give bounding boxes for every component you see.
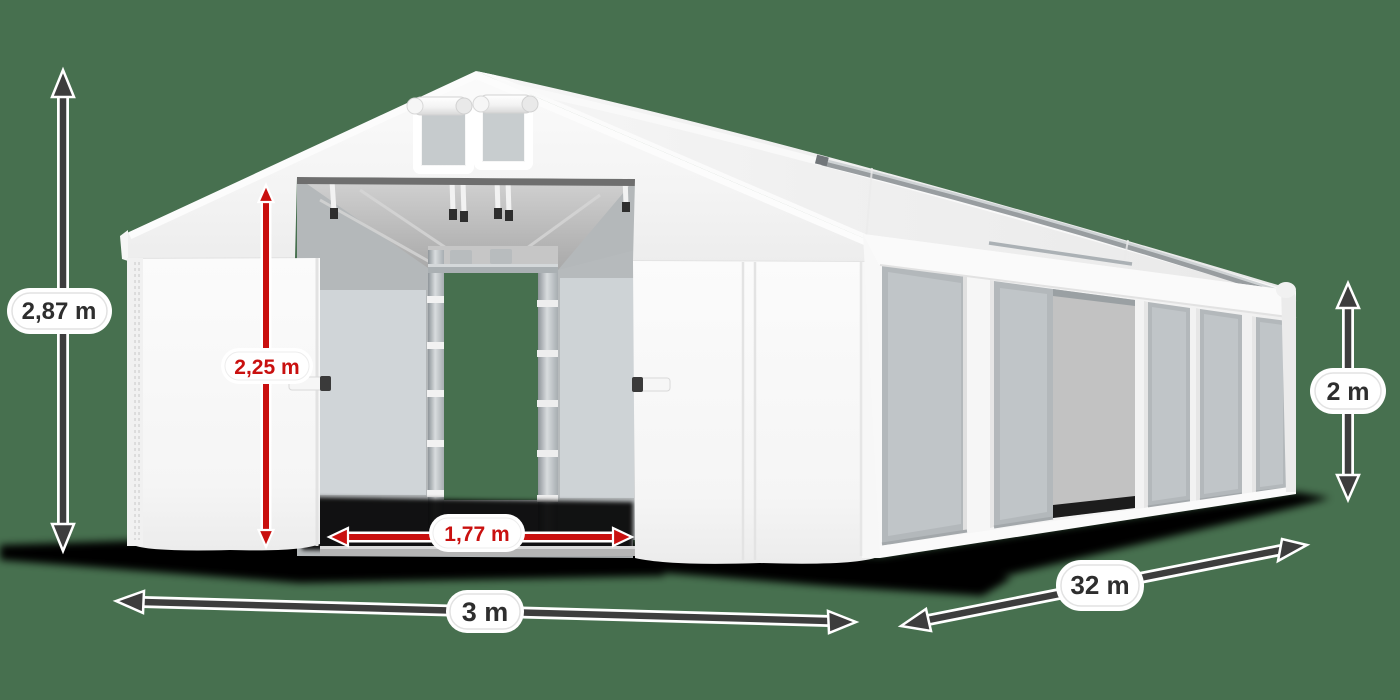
svg-text:32 m: 32 m (1070, 570, 1129, 600)
svg-text:1,77 m: 1,77 m (444, 523, 509, 546)
svg-text:2,25 m: 2,25 m (234, 356, 299, 379)
svg-text:2,87 m: 2,87 m (22, 298, 97, 325)
svg-text:3 m: 3 m (462, 597, 509, 627)
svg-text:2 m: 2 m (1326, 378, 1369, 406)
